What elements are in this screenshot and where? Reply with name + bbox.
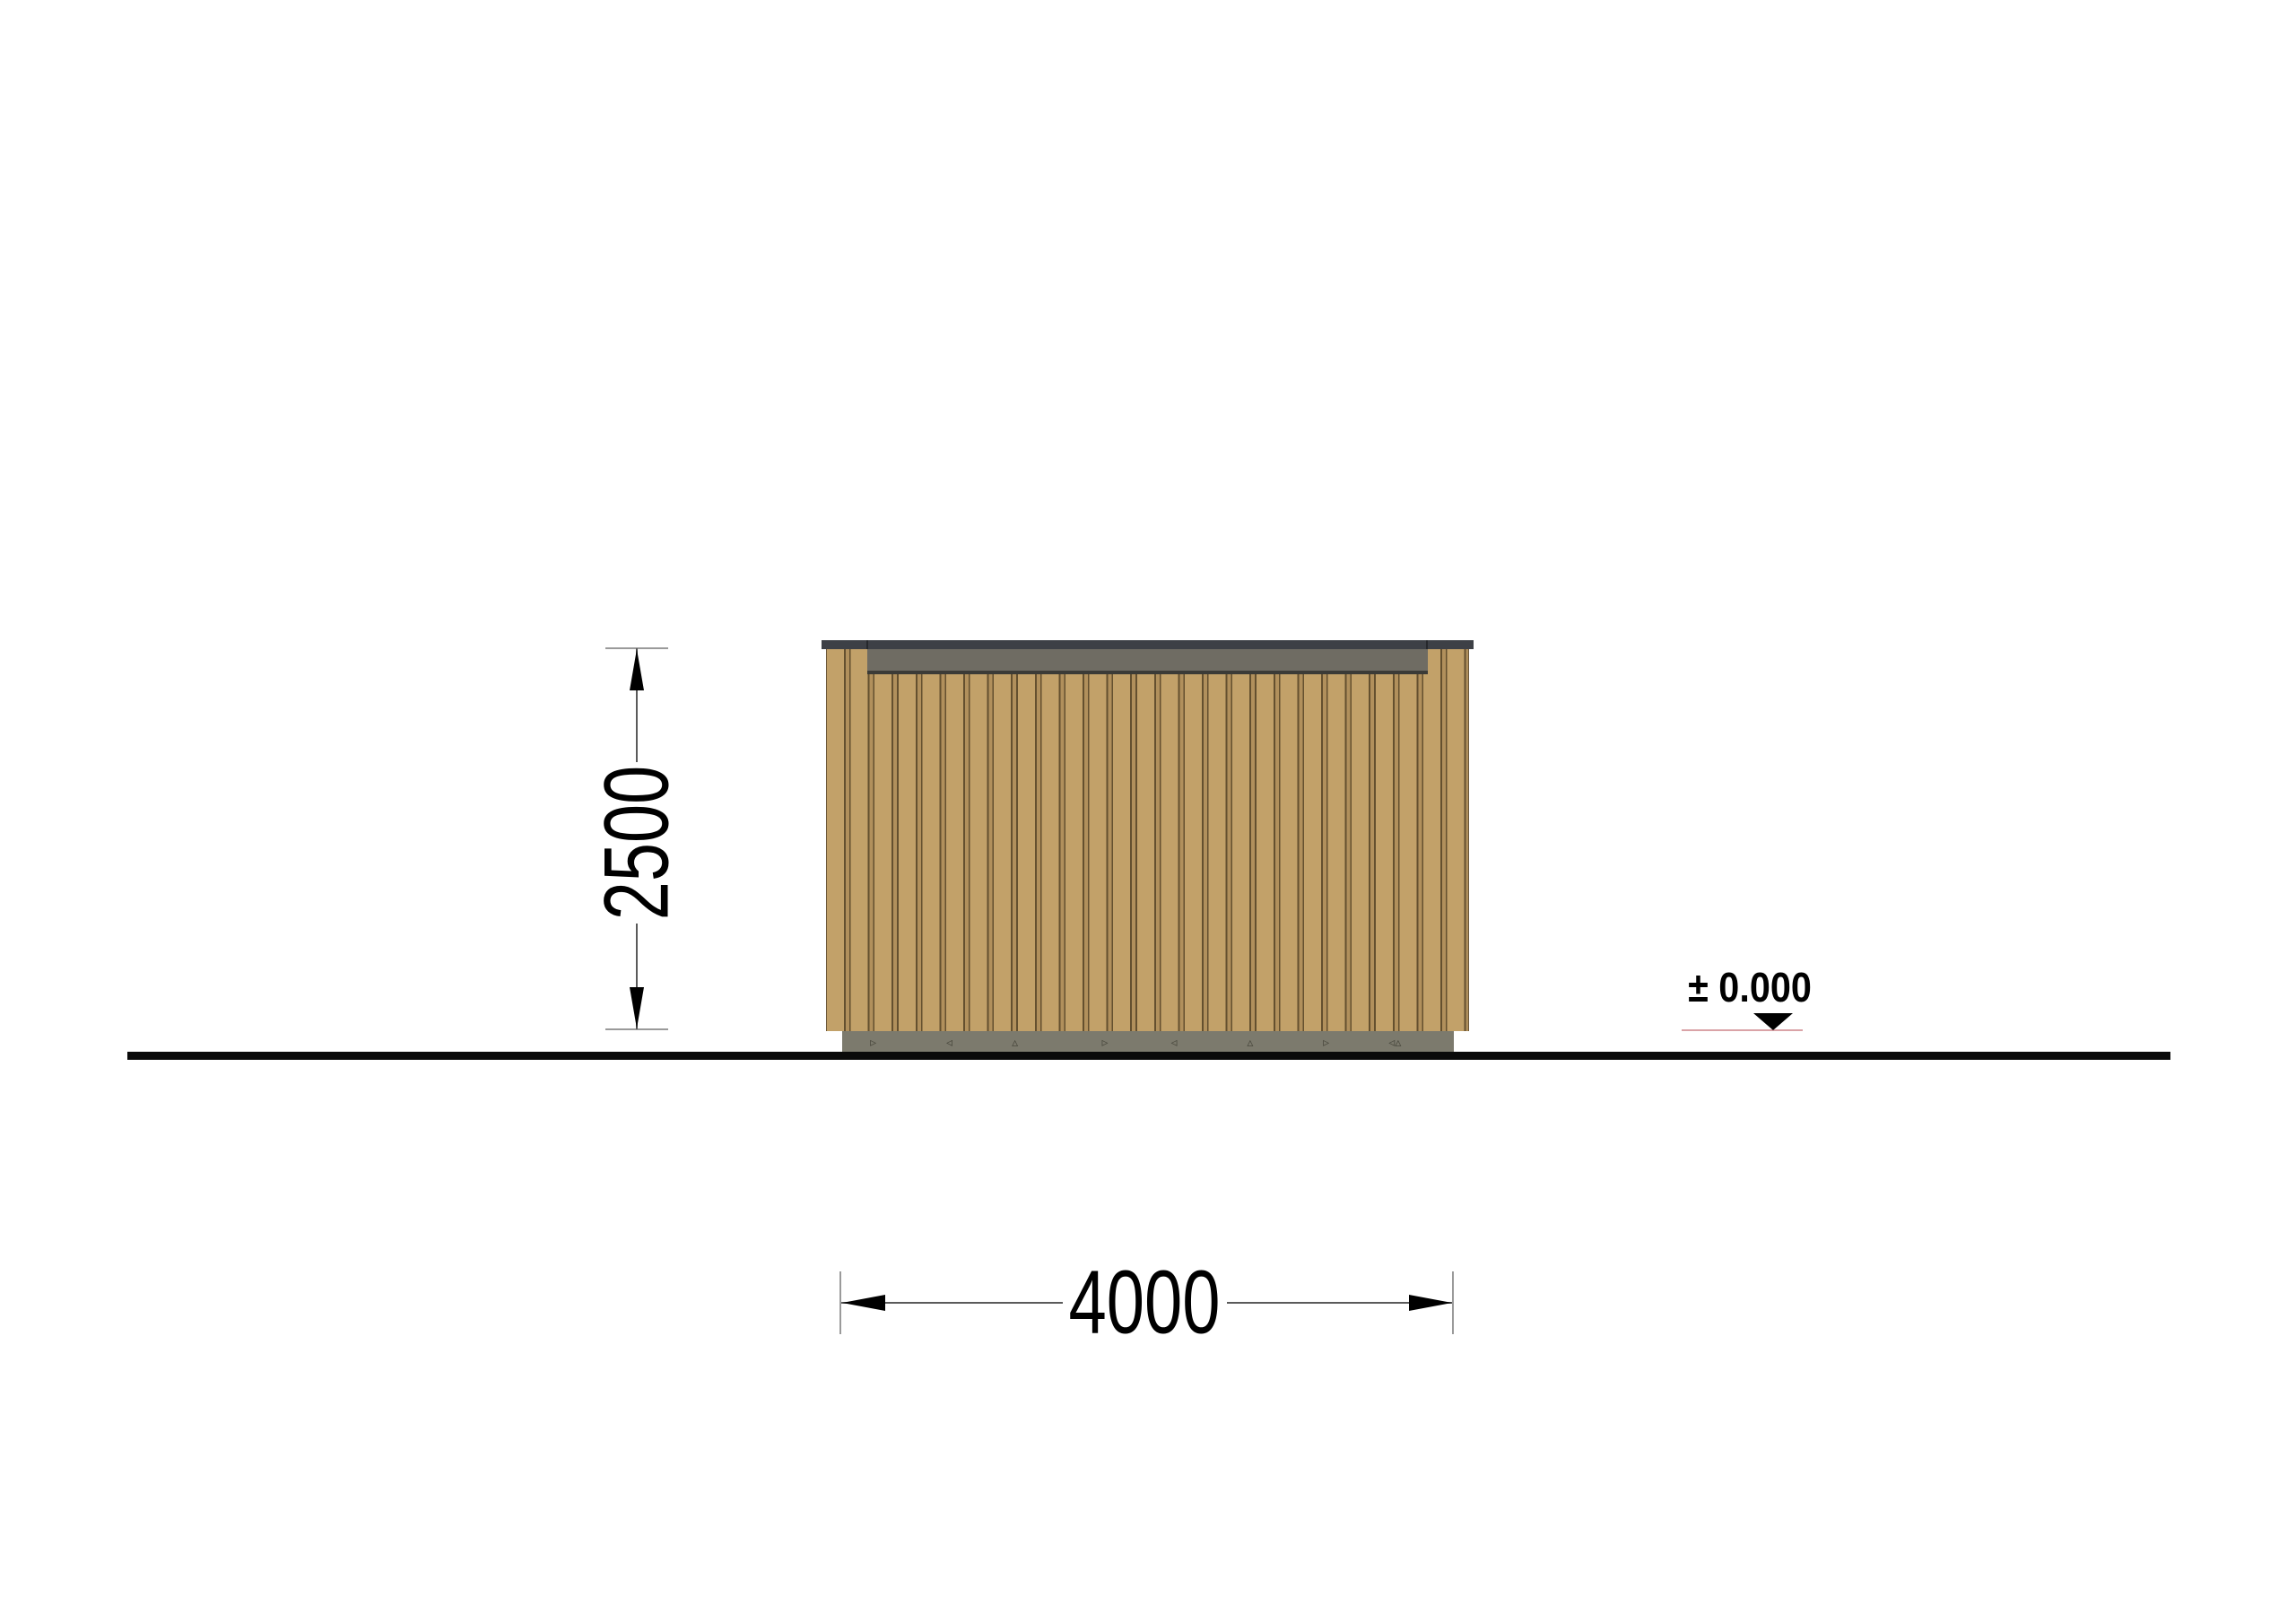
level-marker-triangle-icon [1753, 1013, 1793, 1030]
elevation-drawing: ▹ ◃ ▵ ▹ ◃ ▵ ▹ ◃▵ 2500 [0, 0, 2296, 1622]
width-dim-tick-right [1452, 1271, 1454, 1334]
concrete-foundation: ▹ ◃ ▵ ▹ ◃ ▵ ▹ ◃▵ [842, 1031, 1454, 1052]
ground-line [127, 1052, 2170, 1060]
width-dim-arrow-right-icon [1409, 1295, 1452, 1311]
roof-fascia-board [867, 649, 1428, 674]
wood-cladding-wall [826, 648, 1469, 1031]
height-dim-arrow-down-icon [630, 987, 644, 1028]
width-dim-arrow-left-icon [842, 1295, 885, 1311]
concrete-speckle-texture: ▹ ◃ ▵ ▹ ◃ ▵ ▹ ◃▵ [842, 1031, 1454, 1052]
roof-seam-right [1426, 640, 1428, 649]
height-dim-arrow-up-icon [630, 649, 644, 690]
width-dim-label: 4000 [1068, 1252, 1220, 1355]
roof-seam-left [866, 640, 868, 649]
height-dim-label: 2500 [585, 766, 690, 920]
roof-slab [822, 640, 1474, 649]
ground-level-label: ± 0.000 [1688, 963, 1812, 1011]
